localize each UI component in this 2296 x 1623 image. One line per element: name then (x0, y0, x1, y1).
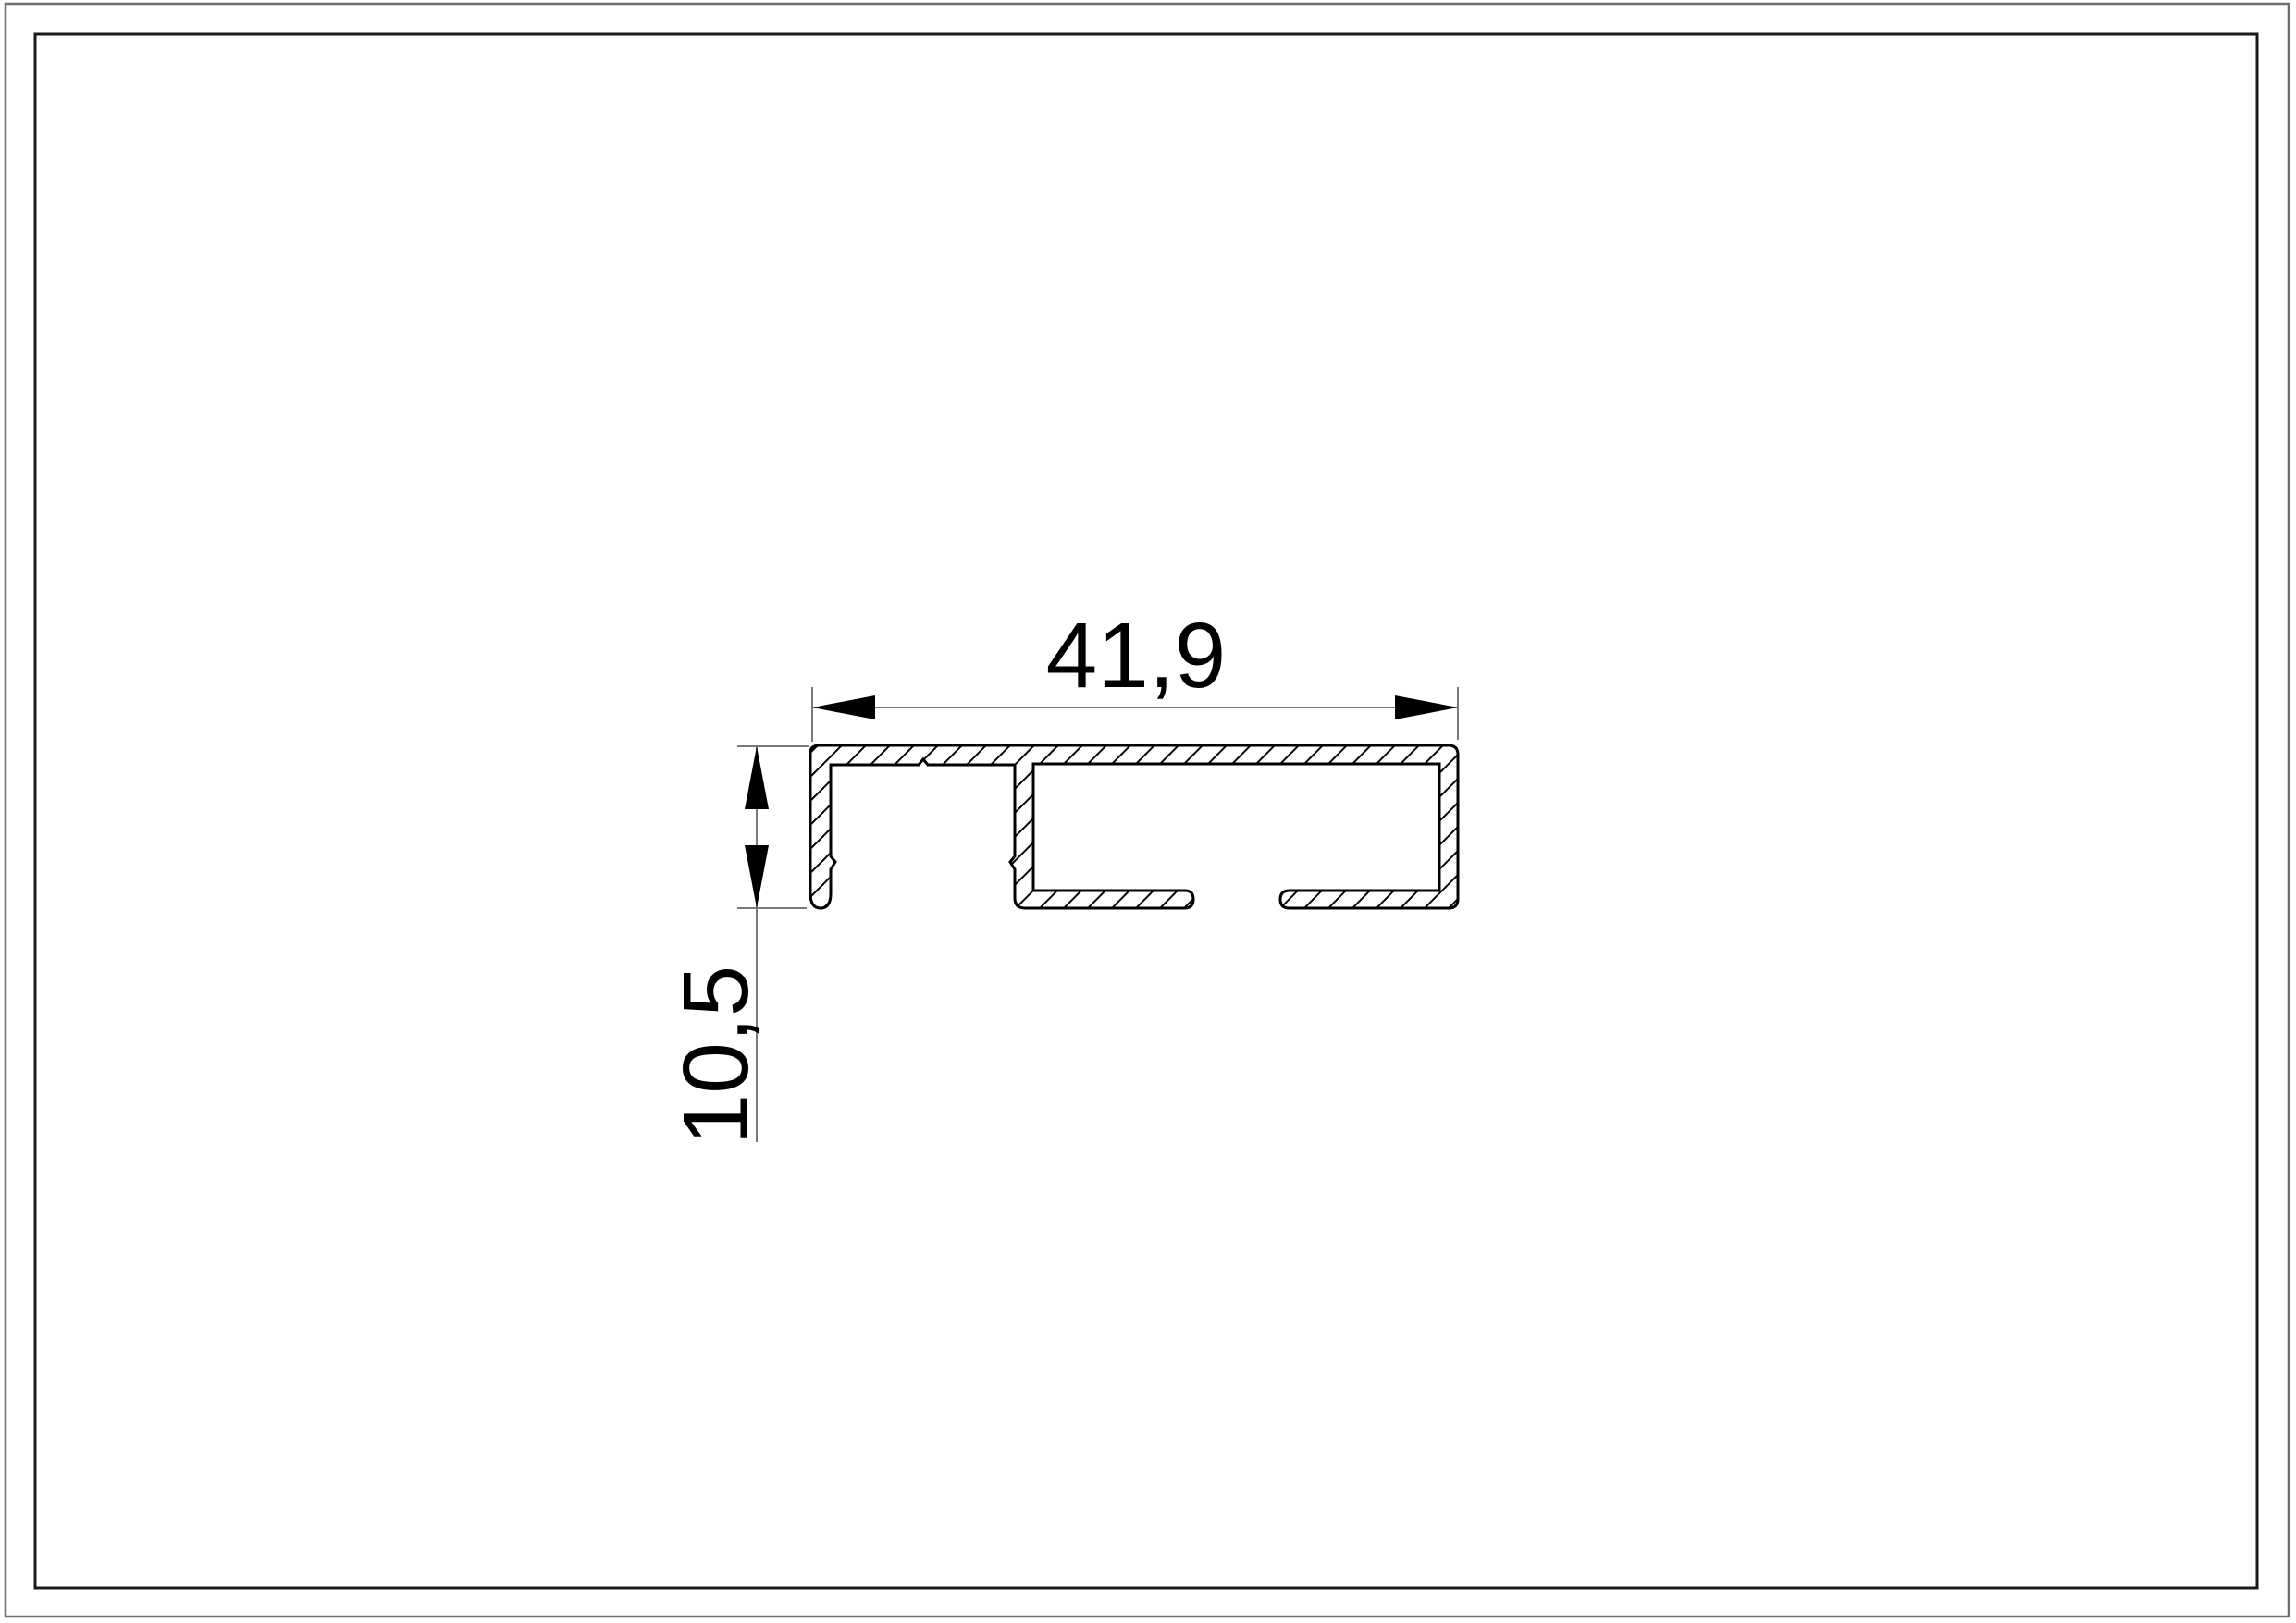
page-frame-outer (6, 4, 2289, 1617)
dim-height-arrow-bottom-icon (745, 845, 769, 908)
dim-width-arrow-right-icon (1395, 695, 1458, 719)
drawing-canvas: 41,9 10,5 (0, 0, 2296, 1623)
dim-width-label: 41,9 (1046, 604, 1227, 707)
dim-width-arrow-left-icon (812, 695, 875, 719)
page-frame-inner (35, 34, 2257, 1588)
drawing-page: 41,9 10,5 (0, 0, 2296, 1623)
profile-cross-section (810, 745, 1458, 908)
dimension-width: 41,9 (812, 604, 1458, 742)
dim-height-label: 10,5 (664, 965, 768, 1146)
dim-height-arrow-top-icon (745, 746, 769, 809)
dimension-height: 10,5 (664, 746, 809, 1145)
